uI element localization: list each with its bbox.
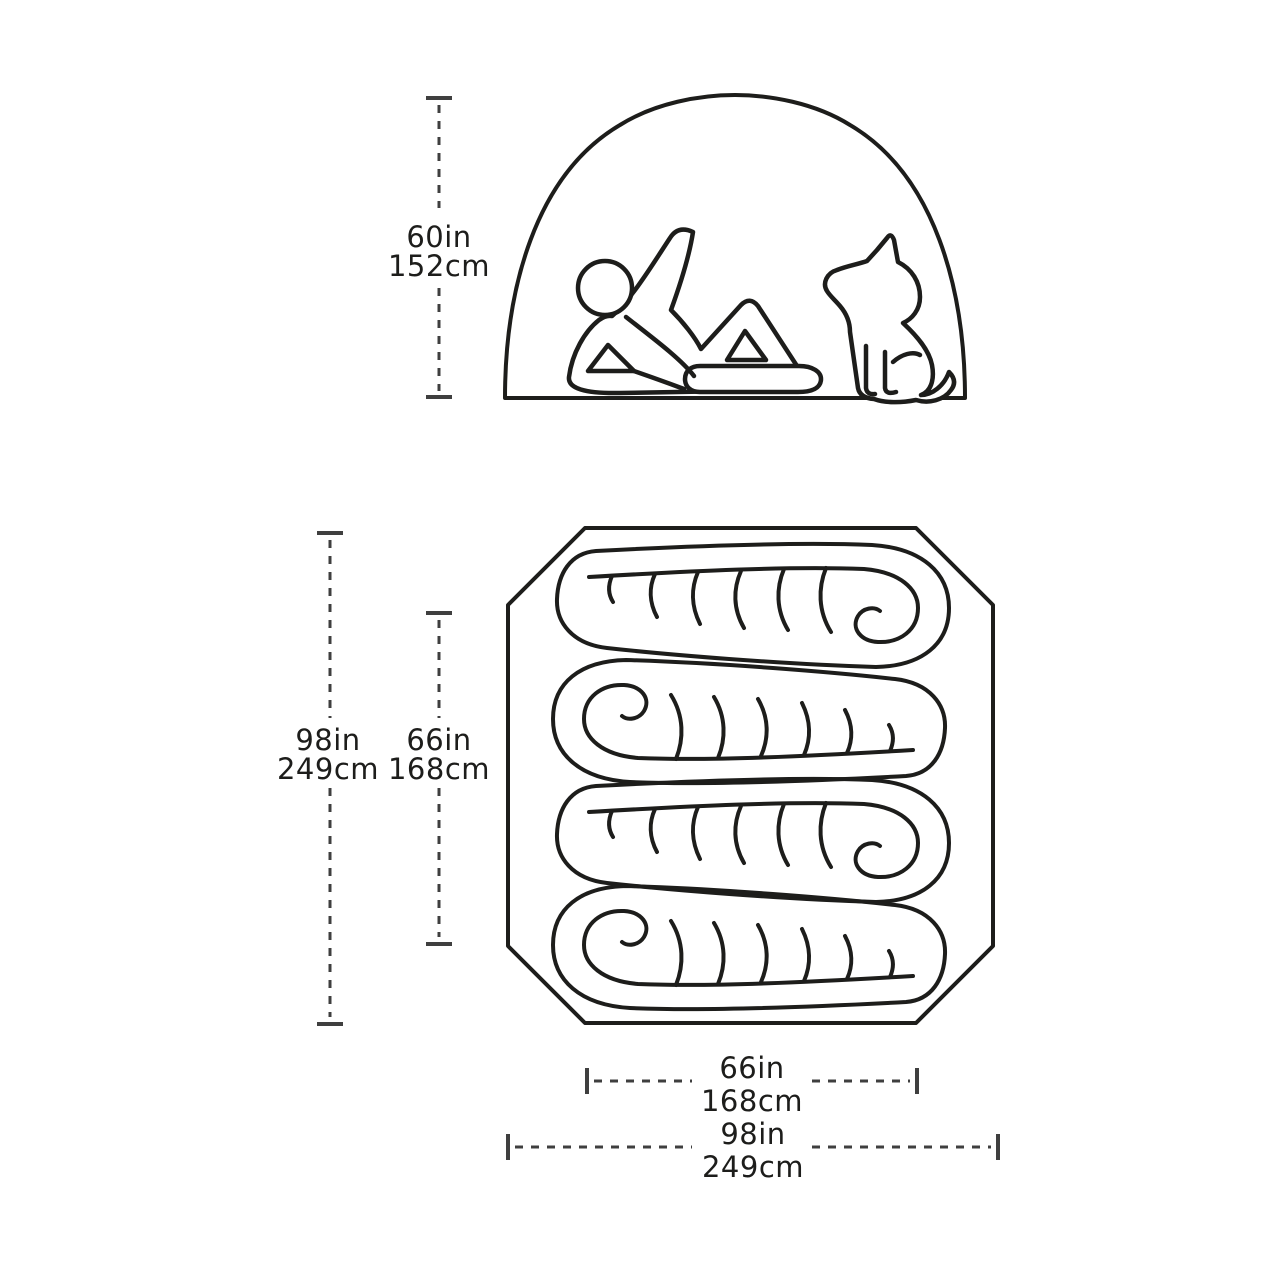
person-head xyxy=(578,261,632,315)
person-figure xyxy=(569,230,821,394)
floor-length-label-cm: 249cm xyxy=(277,752,379,786)
person-extended-leg xyxy=(685,366,821,392)
floor-width-label-cm: 249cm xyxy=(702,1150,804,1184)
side-view xyxy=(505,95,965,402)
inner-length-label-cm: 168cm xyxy=(388,752,490,786)
dog-body xyxy=(825,235,954,402)
inner-width-label-in: 66in xyxy=(719,1051,784,1085)
sleeping-bag-2 xyxy=(553,660,945,783)
floor-width-label-in: 98in xyxy=(720,1117,785,1151)
inner-width-label-cm: 168cm xyxy=(701,1084,803,1118)
sleeping-bag-1 xyxy=(557,544,949,667)
floor-plan xyxy=(508,528,993,1023)
floor-outline xyxy=(508,528,993,1023)
dog-figure xyxy=(825,235,954,402)
sleeping-bag-4 xyxy=(553,886,945,1009)
sleeping-bag-3 xyxy=(557,779,949,902)
tent-dimensions-diagram: 60in 152cm 98in 249cm 66in 168cm 66in 16… xyxy=(0,0,1280,1280)
diagram-svg: 60in 152cm 98in 249cm 66in 168cm 66in 16… xyxy=(0,0,1280,1280)
height-label-cm: 152cm xyxy=(388,249,490,283)
